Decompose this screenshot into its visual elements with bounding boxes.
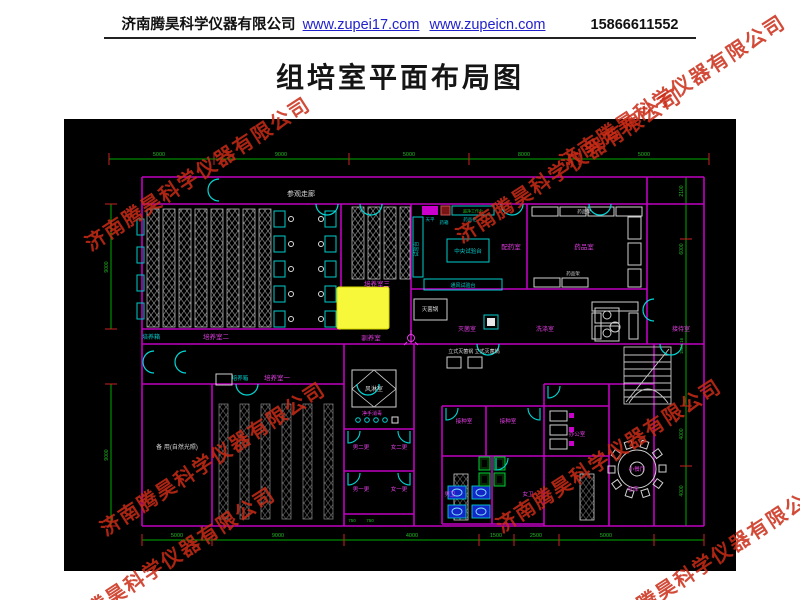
plan-label: 4000	[406, 533, 418, 539]
plan-label: 培养室三	[364, 279, 391, 288]
plan-label: 药品柜	[463, 216, 477, 223]
plan-label: 4000	[679, 428, 685, 439]
plan-label: 9000	[104, 261, 110, 272]
plan-label: 通风试验台	[450, 282, 475, 289]
plan-label: 9000	[104, 449, 110, 460]
plan-label: 4000	[679, 485, 685, 496]
plan-label: 灭菌室	[458, 325, 476, 333]
plan-label: 9000	[275, 152, 287, 158]
plan-label: 5000	[600, 533, 612, 539]
plan-label: 接待室	[672, 325, 690, 333]
plan-label: 接种室	[500, 417, 517, 425]
link-zupei17[interactable]: www.zupei17.com	[303, 17, 420, 33]
plan-label: 办公室	[569, 430, 586, 438]
plan-label: 5000	[171, 533, 183, 539]
plan-label: 中央试验台	[454, 247, 482, 255]
highlight-square	[337, 287, 389, 329]
plan-label: 女卫	[522, 490, 534, 498]
plan-label: 药品架	[566, 270, 580, 277]
plan-labels: 参观走廊培养箱培养室二培养室三驯养室培养室一培养箱备 用(自然光照)风淋室净手消…	[104, 152, 690, 539]
plan-label: 净手消毒	[362, 410, 382, 417]
page-title: 组培室平面布局图	[0, 56, 800, 96]
header-divider	[104, 37, 696, 39]
floorplan-svg: 参观走廊培养箱培养室二培养室三驯养室培养室一培养箱备 用(自然光照)风淋室净手消…	[64, 119, 736, 571]
plan-label: 2100	[679, 185, 685, 196]
link-zupeicn[interactable]: www.zupeicn.com	[429, 17, 545, 33]
plan-label: 洗涤室	[536, 325, 554, 333]
plan-label: 灭菌锅	[422, 305, 439, 313]
plan-label: 女一更	[391, 485, 408, 493]
plan-label: 男二更	[353, 444, 370, 451]
plan-label: 备 用(自然光照)	[156, 443, 198, 451]
stairs	[624, 347, 671, 404]
company-name: 济南腾昊科学仪器有限公司	[122, 17, 296, 33]
plan-label: 小餐厅	[629, 465, 646, 473]
plan-label: 药品室	[574, 242, 594, 251]
plan-label: 5000	[638, 152, 650, 158]
plan-label: 仓库	[627, 485, 639, 493]
plan-label: 风淋室	[365, 385, 383, 393]
plan-label: 药品架	[577, 208, 591, 215]
phone-number: 15866611552	[591, 17, 679, 33]
floorplan-canvas: 参观走廊培养箱培养室二培养室三驯养室培养室一培养箱备 用(自然光照)风淋室净手消…	[64, 119, 736, 571]
plan-label: 2500	[530, 533, 542, 539]
plan-label: 6000	[679, 243, 685, 254]
plan-label: 9000	[272, 533, 284, 539]
plan-label: 培养室一	[264, 373, 291, 382]
plan-label: 1500	[490, 533, 502, 539]
plan-label: 培养室二	[203, 332, 230, 341]
plan-label: 参观走廊	[287, 189, 315, 198]
plan-label: 培养箱	[232, 374, 249, 382]
plan-label: 1824.16	[679, 337, 684, 354]
plan-label: 天平	[426, 217, 435, 223]
page-header: 济南腾昊科学仪器有限公司 www.zupei17.com www.zupeicn…	[0, 13, 800, 34]
plan-label: 驯养室	[361, 333, 381, 342]
plan-label: 8000	[518, 152, 530, 158]
plan-label: 5000	[153, 152, 165, 158]
plan-label: 立式灭菌锅 立式灭菌锅	[448, 348, 499, 355]
plan-label: 男一更	[353, 486, 370, 493]
plan-label: 药箱	[440, 219, 449, 226]
plan-label: 男卫	[444, 491, 456, 498]
plan-label: 配药室	[501, 242, 521, 251]
plan-label: 750	[366, 518, 374, 523]
plan-label: 5000	[403, 152, 415, 158]
plan-label: 试验台	[413, 241, 420, 256]
plan-label: 750	[348, 518, 356, 523]
plan-label: 超净工作台	[463, 208, 483, 214]
plan-label: 培养箱	[142, 333, 160, 341]
plan-label: 接种室	[456, 417, 473, 425]
plan-label: 女二更	[391, 443, 408, 451]
page: 济南腾昊科学仪器有限公司 www.zupei17.com www.zupeicn…	[0, 0, 800, 600]
